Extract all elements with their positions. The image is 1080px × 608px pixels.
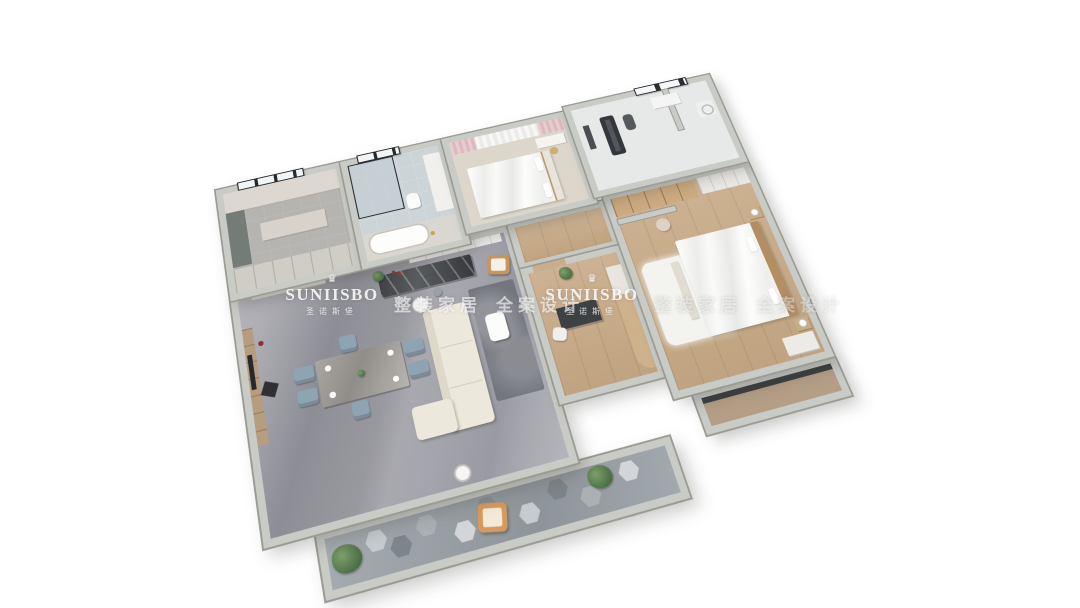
table-centerpiece xyxy=(357,369,365,377)
tagline-part-a: 整装家居 xyxy=(394,296,482,315)
hex-tile xyxy=(517,501,543,526)
plate xyxy=(329,391,337,399)
tagline-part-a: 整装家居 xyxy=(654,296,742,315)
shower-glass-enclosure xyxy=(347,156,405,219)
wood-armchair xyxy=(487,255,510,275)
crown-icon: ♛ xyxy=(536,274,648,285)
balcony-plant xyxy=(330,540,365,576)
hex-tile xyxy=(452,519,478,545)
toilet xyxy=(405,192,421,210)
hex-tile xyxy=(414,513,440,538)
hex-tile xyxy=(616,459,642,483)
study-chair xyxy=(553,327,567,341)
floorplan-render: ♛ SUNIISBO 圣诺斯堡 整装家居全案设计 ♛ SUNIISBO 圣诺斯堡… xyxy=(0,0,1080,608)
dining-chair xyxy=(293,364,316,385)
red-flower xyxy=(398,272,402,276)
sofa-chaise xyxy=(411,398,459,441)
laundry-sink xyxy=(650,92,682,109)
plate xyxy=(324,365,332,373)
kitchen-tall-cabinet xyxy=(226,210,253,269)
weight-rack xyxy=(583,125,597,150)
dining-chair xyxy=(351,399,371,421)
dark-art-piece xyxy=(261,381,279,397)
brand-name: SUNIISBO xyxy=(536,285,648,305)
bed-headboard xyxy=(540,150,565,201)
red-flower xyxy=(391,270,395,274)
watermark-tagline: 整装家居全案设计 xyxy=(654,291,844,316)
dining-chair xyxy=(407,359,430,380)
apartment-plan xyxy=(207,73,881,608)
watermark-logo: ♛ SUNIISBO 圣诺斯堡 xyxy=(276,274,388,317)
closet-pouf xyxy=(654,217,672,233)
watermark-logo: ♛ SUNIISBO 圣诺斯堡 xyxy=(536,274,648,317)
gym-window xyxy=(633,77,688,96)
hex-tile xyxy=(389,533,415,559)
pink-curtain xyxy=(449,137,478,155)
bedroom-cabinet xyxy=(782,331,820,356)
exercise-bike xyxy=(621,113,637,131)
dining-chair xyxy=(402,337,425,357)
plate xyxy=(392,375,400,383)
washing-machine xyxy=(694,100,717,118)
brand-name-chinese: 圣诺斯堡 xyxy=(536,306,648,317)
dining-table xyxy=(315,340,410,408)
dining-chair xyxy=(296,387,319,408)
crown-icon: ♛ xyxy=(276,274,388,285)
kitchen-island xyxy=(260,209,328,241)
round-floor-fan xyxy=(452,462,473,484)
brand-name-chinese: 圣诺斯堡 xyxy=(276,306,388,317)
tagline-part-b: 全案设计 xyxy=(756,296,844,315)
sheer-curtain xyxy=(474,123,540,149)
brand-name: SUNIISBO xyxy=(276,285,388,305)
hex-tile xyxy=(544,477,570,502)
bed-small xyxy=(467,150,565,219)
red-vase xyxy=(258,340,264,346)
plate xyxy=(387,349,395,357)
balcony-armchair xyxy=(477,502,508,533)
hex-tile xyxy=(364,528,389,554)
